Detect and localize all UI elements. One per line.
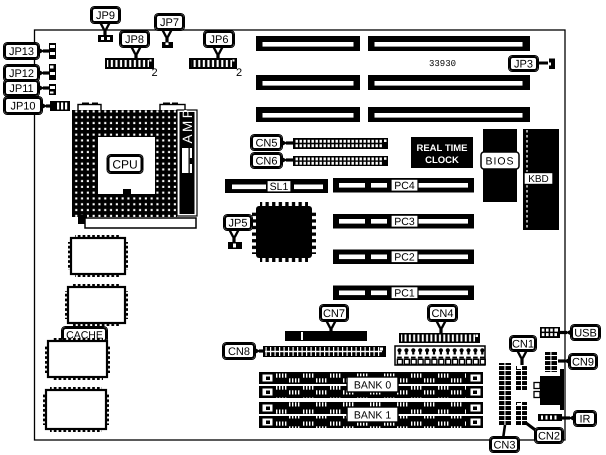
svg-text:2: 2 bbox=[236, 67, 242, 79]
svg-text:PC2: PC2 bbox=[394, 251, 415, 263]
svg-text:JP7: JP7 bbox=[160, 17, 179, 29]
svg-text:JP9: JP9 bbox=[96, 10, 115, 22]
svg-text:PC1: PC1 bbox=[394, 287, 415, 299]
svg-text:JP6: JP6 bbox=[210, 34, 229, 46]
svg-text:33930: 33930 bbox=[429, 59, 456, 69]
svg-text:CN5: CN5 bbox=[255, 137, 277, 149]
svg-text:JP3: JP3 bbox=[514, 58, 533, 70]
svg-text:CN4: CN4 bbox=[431, 308, 453, 320]
svg-text:BANK 1: BANK 1 bbox=[354, 410, 392, 422]
svg-text:2: 2 bbox=[152, 67, 158, 79]
svg-text:SL1: SL1 bbox=[270, 181, 289, 193]
svg-text:JP11: JP11 bbox=[9, 83, 33, 95]
svg-text:REAL TIME: REAL TIME bbox=[416, 143, 467, 154]
svg-text:CN7: CN7 bbox=[323, 308, 345, 320]
svg-text:CN9: CN9 bbox=[572, 356, 594, 368]
svg-text:JP13: JP13 bbox=[9, 46, 34, 58]
svg-text:IR: IR bbox=[580, 413, 591, 425]
svg-text:CLOCK: CLOCK bbox=[425, 155, 459, 166]
svg-text:JP5: JP5 bbox=[229, 217, 248, 229]
svg-text:PC3: PC3 bbox=[394, 216, 415, 228]
svg-text:CN2: CN2 bbox=[538, 430, 560, 442]
svg-text:PC4: PC4 bbox=[394, 180, 415, 192]
svg-text:AMP: AMP bbox=[180, 107, 195, 144]
svg-text:JP10: JP10 bbox=[10, 100, 35, 112]
svg-text:CN8: CN8 bbox=[228, 346, 250, 358]
svg-text:JP12: JP12 bbox=[9, 68, 34, 80]
svg-text:CPU: CPU bbox=[112, 157, 137, 171]
svg-text:CN3: CN3 bbox=[493, 439, 515, 451]
svg-text:KBD: KBD bbox=[528, 174, 549, 185]
svg-text:CN6: CN6 bbox=[255, 155, 277, 167]
svg-text:BIOS: BIOS bbox=[485, 156, 514, 168]
svg-text:BANK 0: BANK 0 bbox=[354, 380, 392, 392]
svg-text:CN1: CN1 bbox=[512, 338, 534, 350]
svg-text:JP8: JP8 bbox=[125, 34, 144, 46]
svg-text:USB: USB bbox=[574, 327, 597, 339]
